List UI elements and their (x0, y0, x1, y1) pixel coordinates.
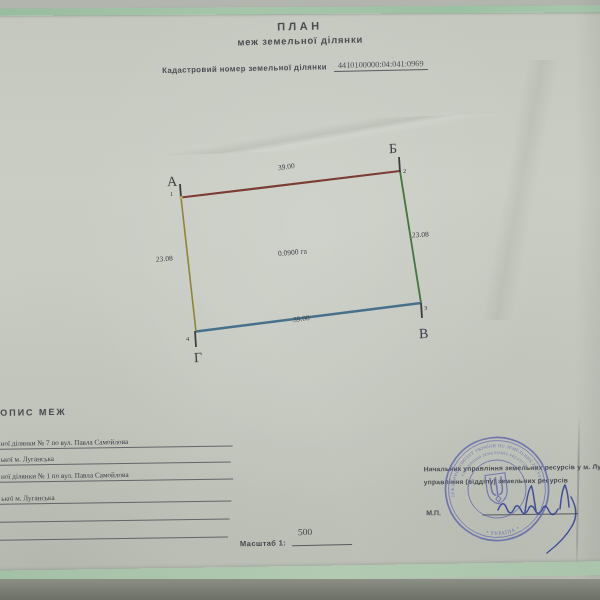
scanned-document-photo: ПЛАН меж земельної ділянки Кадастровий н… (0, 0, 600, 600)
signature-strokes (498, 485, 576, 553)
table-surface (0, 579, 600, 600)
right-edge-shadow (575, 0, 600, 600)
handwritten-signature (0, 0, 600, 600)
